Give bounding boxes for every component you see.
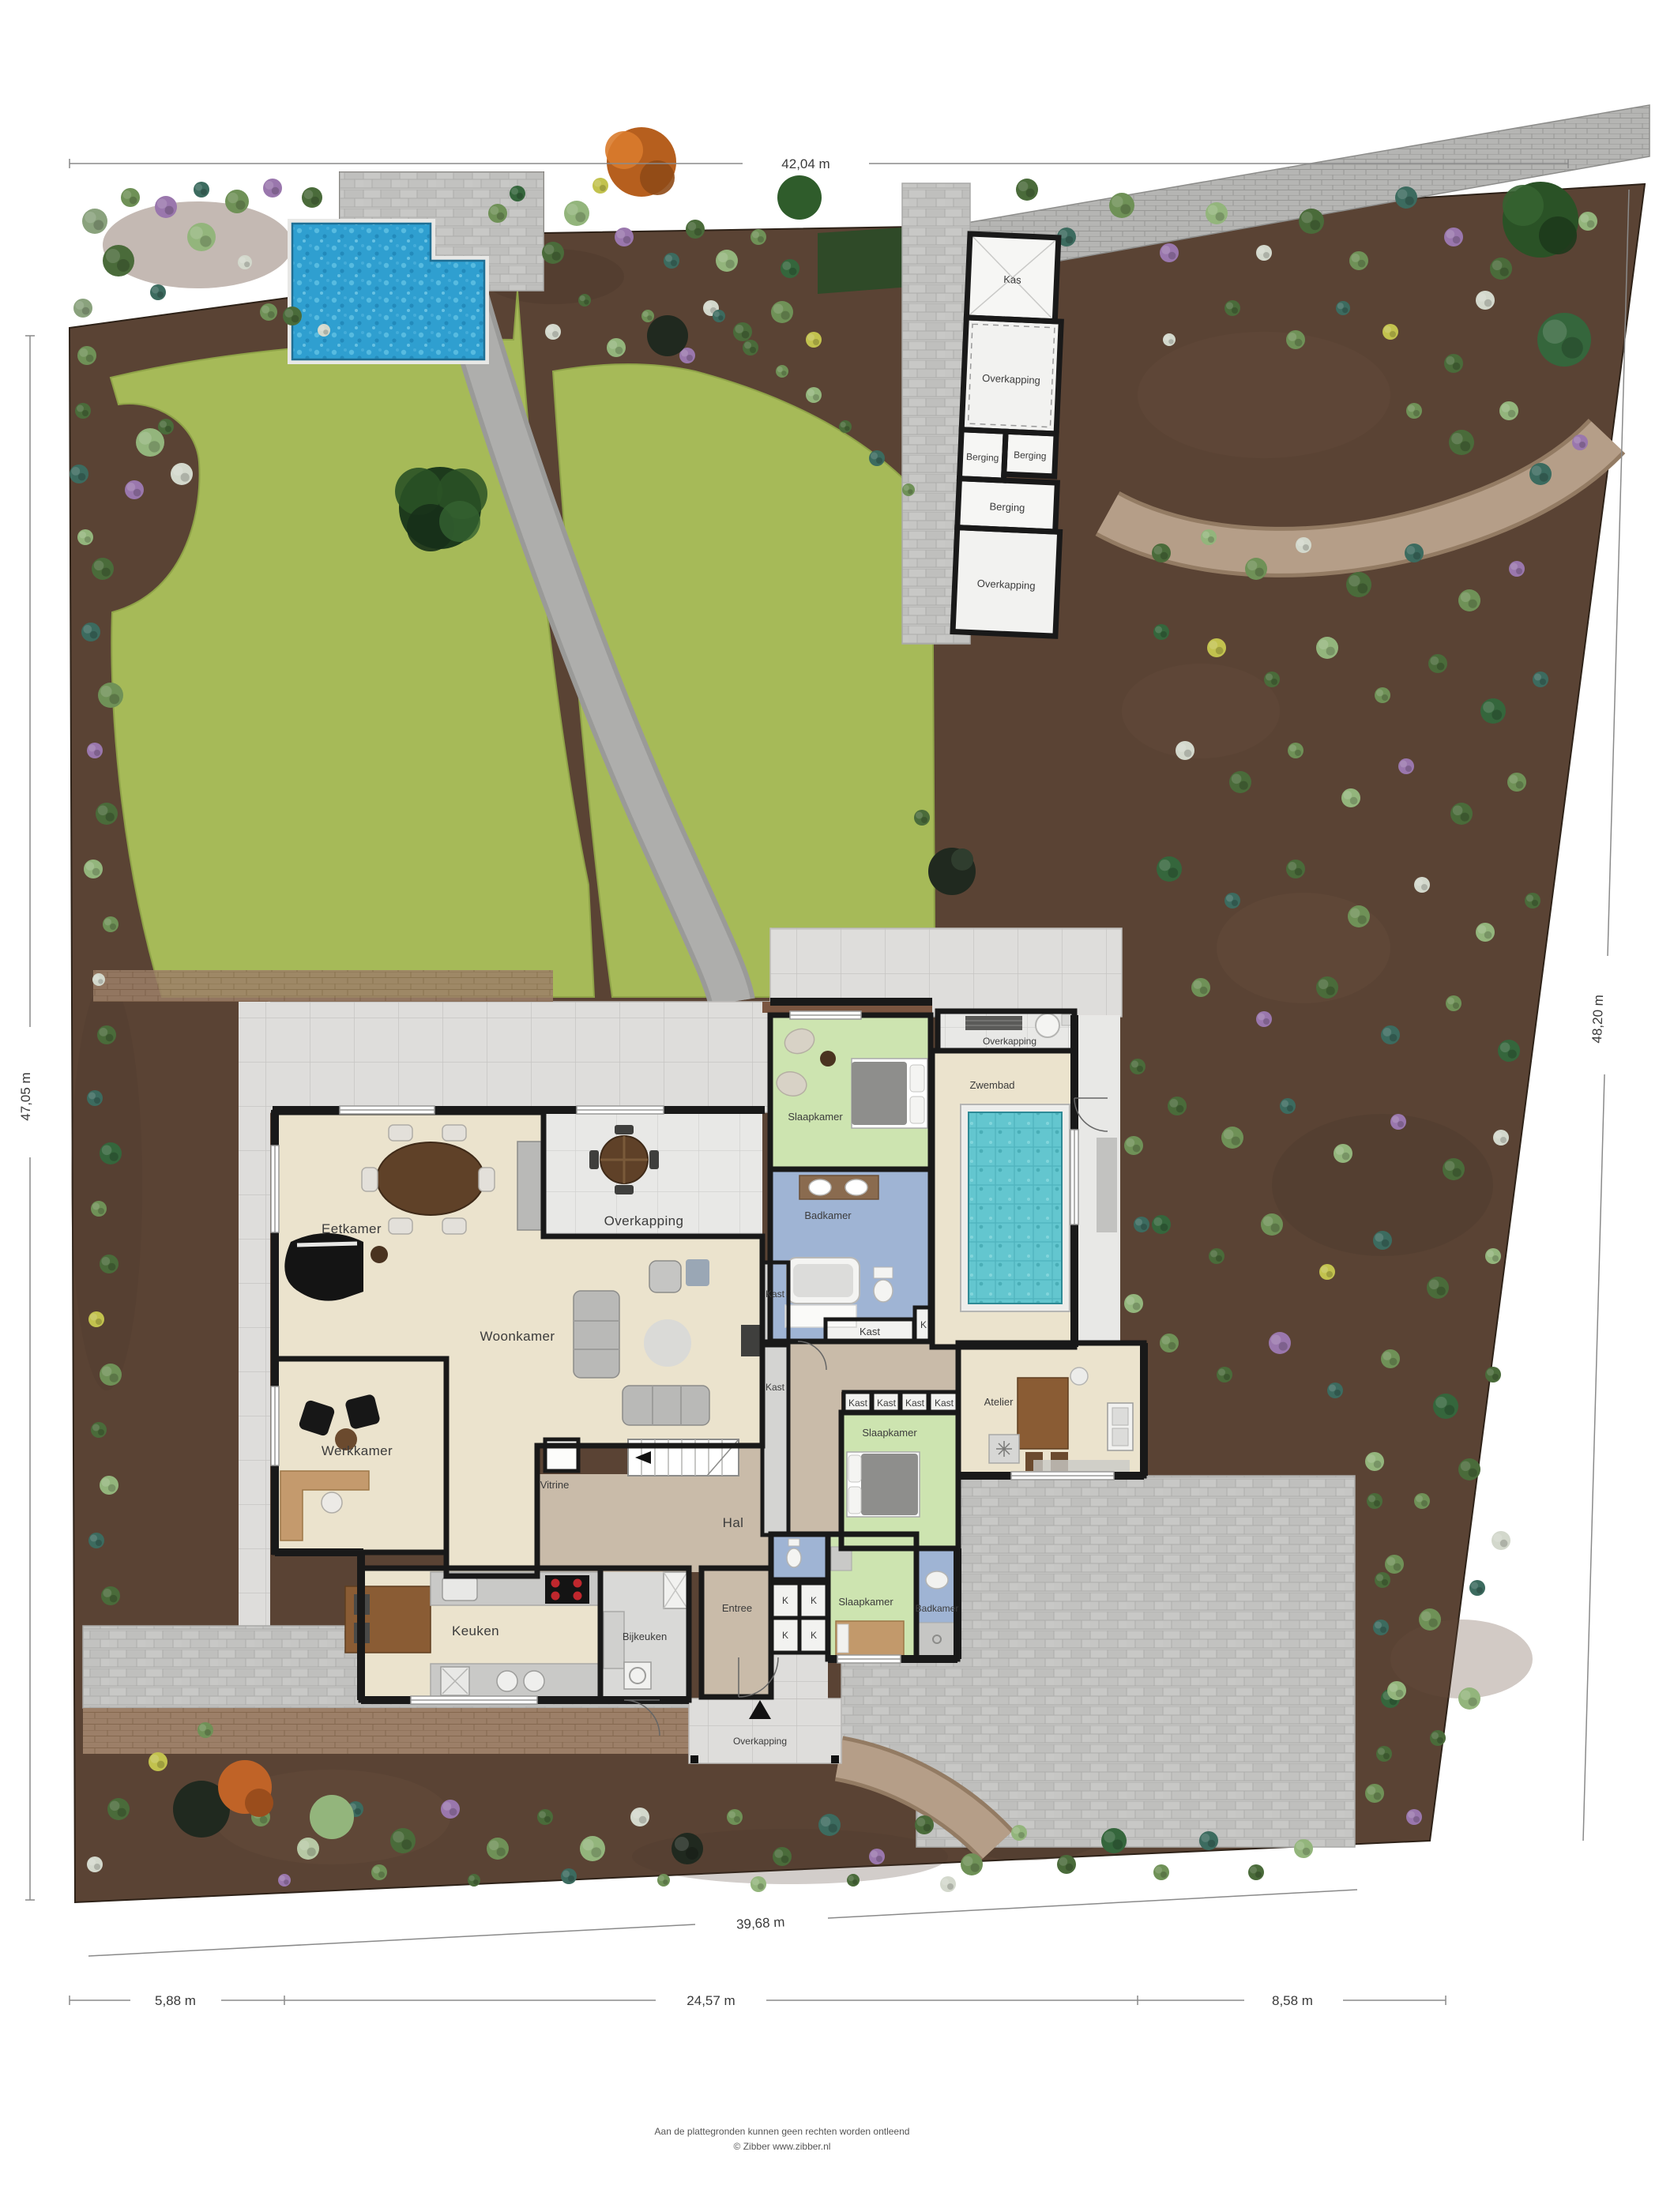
plant	[1224, 300, 1240, 316]
plant	[97, 1025, 116, 1044]
plant	[1498, 1040, 1520, 1062]
plant	[1168, 1097, 1187, 1115]
plant	[1256, 245, 1272, 261]
plant	[1578, 212, 1597, 231]
label-berging-3: Berging	[989, 500, 1025, 513]
plant	[158, 419, 174, 434]
plant	[260, 303, 277, 321]
plant	[592, 178, 608, 194]
plant	[194, 182, 209, 197]
plant	[771, 301, 793, 323]
label-vitrine: Vitrine	[540, 1479, 570, 1491]
plant	[510, 186, 525, 201]
plant	[1446, 995, 1461, 1011]
plant	[100, 1255, 118, 1273]
plant	[961, 1853, 983, 1875]
plant	[98, 683, 123, 708]
plant	[641, 310, 654, 322]
plant	[1458, 589, 1480, 611]
label-kast-row-1: Kast	[848, 1398, 868, 1409]
label-kast-col2: Kast	[766, 1382, 785, 1393]
plant	[1490, 258, 1512, 280]
plant	[1201, 529, 1217, 545]
plant	[1248, 1864, 1264, 1880]
label-zwembad: Zwembad	[969, 1079, 1014, 1091]
plant	[1256, 1011, 1272, 1027]
label-kast-badkamer: Kast	[860, 1326, 880, 1337]
plant	[91, 1201, 107, 1217]
plant	[1430, 1730, 1446, 1746]
plant	[1152, 1215, 1171, 1234]
plant	[1221, 1127, 1243, 1149]
plant	[1341, 788, 1360, 807]
plant	[103, 245, 134, 276]
plant	[1449, 430, 1474, 455]
plant	[371, 1864, 387, 1880]
plant	[869, 450, 885, 466]
plant	[1245, 558, 1267, 580]
plant	[1385, 1555, 1404, 1574]
plant	[1160, 1334, 1179, 1352]
plant	[1406, 403, 1422, 419]
room-corridor-2	[788, 1392, 841, 1536]
plant	[1499, 401, 1518, 420]
plant	[87, 1090, 103, 1106]
label-badkamer-bottom: Badkamer	[916, 1603, 959, 1614]
plant	[657, 1874, 670, 1887]
plant	[1375, 1572, 1390, 1588]
label-overkapping-pool: Overkapping	[983, 1036, 1036, 1047]
label-woonkamer: Woonkamer	[480, 1329, 555, 1344]
plant	[487, 1838, 509, 1860]
plant	[82, 209, 107, 234]
plant	[1390, 1114, 1406, 1130]
plant	[75, 403, 91, 419]
plant	[1458, 1458, 1480, 1480]
plant	[733, 322, 752, 341]
plant	[100, 1476, 118, 1495]
porch-step	[771, 1653, 828, 1698]
plant	[70, 465, 88, 483]
dim-bottom: 39,68 m	[736, 1914, 785, 1932]
plant	[1130, 1059, 1145, 1074]
plant	[1153, 1864, 1169, 1880]
plant	[1124, 1294, 1143, 1313]
plant	[84, 860, 103, 878]
plant	[1509, 561, 1525, 577]
plant	[1387, 1681, 1406, 1700]
plant	[750, 1876, 766, 1892]
plant	[1485, 1248, 1501, 1264]
plant	[806, 332, 822, 348]
plant	[545, 324, 561, 340]
plant	[81, 623, 100, 641]
plant	[1160, 243, 1179, 262]
plant	[839, 420, 852, 433]
plant	[1286, 330, 1305, 349]
plant	[1209, 1248, 1224, 1264]
plant	[1348, 905, 1370, 927]
plant	[1011, 1825, 1027, 1841]
plant	[727, 1809, 743, 1825]
plant	[1365, 1452, 1384, 1471]
plant	[91, 1422, 107, 1438]
label-werkkamer: Werkkamer	[322, 1443, 393, 1458]
plant	[1373, 1619, 1389, 1635]
plant	[92, 558, 114, 580]
plant	[869, 1849, 885, 1864]
label-overkapping-2: Overkapping	[977, 577, 1036, 592]
outbuilding: Kas Overkapping Berging Berging Berging …	[953, 234, 1073, 636]
plant	[615, 228, 634, 246]
plant	[847, 1874, 860, 1887]
label-k-badkamer: K	[920, 1319, 927, 1330]
plant	[88, 1533, 104, 1548]
plant	[1296, 537, 1311, 553]
plant	[1444, 228, 1463, 246]
plant	[1525, 893, 1540, 908]
plant	[278, 1874, 291, 1887]
tree-orange-top	[605, 127, 676, 197]
plant	[283, 307, 302, 325]
plant	[1507, 773, 1526, 792]
plant	[1217, 1367, 1232, 1382]
label-k-grid-2: K	[811, 1595, 817, 1606]
plant	[1349, 251, 1368, 270]
terrace-north	[269, 1002, 773, 1112]
tree-small-top	[777, 175, 822, 220]
label-overkapping-patio: Overkapping	[604, 1213, 684, 1228]
plant	[1294, 1839, 1313, 1858]
plant	[1414, 877, 1430, 893]
footer-credit: © Zibber www.zibber.nl	[734, 2141, 831, 2152]
plant	[915, 1815, 934, 1834]
plant	[1381, 1025, 1400, 1044]
plant	[542, 242, 564, 264]
plant	[1419, 1608, 1441, 1631]
label-berging-1: Berging	[966, 451, 999, 464]
plant	[1264, 671, 1280, 687]
plant	[1346, 572, 1371, 597]
plant	[73, 299, 92, 318]
plant	[1101, 1828, 1127, 1853]
plant	[77, 529, 93, 545]
plant	[1016, 179, 1038, 201]
plant	[750, 229, 766, 245]
label-atelier: Atelier	[984, 1396, 1014, 1408]
plant	[1537, 313, 1591, 367]
plant	[607, 338, 626, 357]
plant	[1367, 1493, 1382, 1509]
plant	[776, 365, 788, 378]
plant	[87, 1856, 103, 1872]
plant	[136, 428, 164, 457]
plant	[1299, 209, 1324, 234]
plant	[1381, 1349, 1400, 1368]
plant	[671, 1833, 703, 1864]
dim-seg-mid: 24,57 m	[687, 1993, 735, 2008]
plant	[1376, 1746, 1392, 1762]
plant	[1134, 1217, 1149, 1232]
plant	[1286, 860, 1305, 878]
plant	[940, 1876, 956, 1892]
label-hal: Hal	[723, 1515, 744, 1530]
plant	[171, 463, 193, 485]
plant	[125, 480, 144, 499]
label-slaapkamer-top: Slaapkamer	[788, 1111, 843, 1123]
tree-green-topright	[1503, 182, 1578, 258]
soil-patch	[1390, 1619, 1533, 1698]
plant	[101, 1586, 120, 1605]
label-berging-2: Berging	[1014, 450, 1047, 462]
plant	[155, 196, 177, 218]
plant	[773, 1847, 792, 1866]
plant	[1206, 202, 1228, 224]
plant	[1176, 741, 1194, 760]
plant	[1109, 193, 1134, 218]
plant	[1373, 1231, 1392, 1250]
plant	[1395, 186, 1417, 209]
plant	[87, 743, 103, 758]
plant	[713, 310, 725, 322]
label-overkapping-porch: Overkapping	[733, 1736, 787, 1747]
label-entree: Entree	[722, 1602, 752, 1614]
plant	[1375, 687, 1390, 703]
soil-patch	[1138, 332, 1390, 458]
dim-left: 47,05 m	[18, 1072, 33, 1120]
plant	[302, 187, 322, 208]
terrace-west-strip	[239, 1002, 270, 1630]
plant	[686, 220, 705, 239]
plant	[902, 483, 915, 496]
plant	[1157, 856, 1182, 882]
plant	[743, 340, 758, 355]
plant	[630, 1808, 649, 1826]
plant	[100, 1364, 122, 1386]
plant	[187, 223, 216, 251]
room-entree	[702, 1568, 771, 1697]
plant	[1199, 1831, 1218, 1850]
plant	[103, 916, 118, 932]
label-slaapkamer-bottom: Slaapkamer	[838, 1596, 893, 1608]
plant	[1469, 1580, 1485, 1596]
plant	[1406, 1809, 1422, 1825]
plant	[564, 201, 589, 226]
label-k-grid-3: K	[782, 1630, 788, 1641]
site-plan-page: Kas Overkapping Berging Berging Berging …	[0, 0, 1659, 2212]
plant	[1288, 743, 1303, 758]
plant	[390, 1828, 416, 1853]
closet-column-2	[762, 1345, 788, 1535]
plant	[1319, 1264, 1335, 1280]
plant	[1152, 544, 1171, 562]
plant	[1572, 434, 1588, 450]
label-badkamer-top: Badkamer	[804, 1209, 852, 1221]
plant	[107, 1798, 130, 1820]
plant	[1444, 354, 1463, 373]
label-bijkeuken: Bijkeuken	[623, 1631, 667, 1642]
plant	[818, 1814, 841, 1836]
plant	[92, 973, 105, 986]
plant	[1269, 1332, 1291, 1354]
label-k-grid-4: K	[811, 1630, 817, 1641]
plant	[914, 810, 930, 826]
plant	[1492, 1531, 1510, 1550]
plant	[716, 250, 738, 272]
plant	[1382, 324, 1398, 340]
label-eetkamer: Eetkamer	[322, 1221, 382, 1236]
plant	[1334, 1144, 1352, 1163]
plant	[1480, 698, 1506, 724]
label-kast-row-2: Kast	[877, 1398, 897, 1409]
plant	[1153, 624, 1169, 640]
plant	[1224, 893, 1240, 908]
plant	[468, 1874, 480, 1887]
plant	[1280, 1098, 1296, 1114]
plant	[1327, 1382, 1343, 1398]
plant	[238, 255, 252, 269]
plant	[318, 324, 330, 337]
label-keuken: Keuken	[452, 1623, 499, 1638]
soil-patch	[1122, 664, 1280, 758]
plant	[96, 803, 118, 825]
plant	[1533, 671, 1548, 687]
plant	[121, 188, 140, 207]
plant	[150, 284, 166, 300]
dim-seg-left: 5,88 m	[155, 1993, 196, 2008]
footer: Aan de plattegronden kunnen geen rechten…	[655, 2126, 910, 2152]
plant	[1443, 1158, 1465, 1180]
plant	[1124, 1136, 1143, 1155]
plant	[88, 1311, 104, 1327]
plant	[1207, 638, 1226, 657]
plant	[1427, 1277, 1449, 1299]
plant	[1493, 1130, 1509, 1145]
label-overkapping-1: Overkapping	[982, 372, 1040, 386]
label-kas: Kas	[1003, 273, 1022, 286]
label-slaapkamer-mid: Slaapkamer	[862, 1427, 917, 1439]
label-kast-row-3: Kast	[905, 1398, 925, 1409]
plant	[580, 1836, 605, 1861]
plant	[806, 387, 822, 403]
plant	[1476, 923, 1495, 942]
plant	[1476, 291, 1495, 310]
plant	[1485, 1367, 1501, 1382]
plant	[1316, 976, 1338, 999]
room-corridor	[788, 1343, 958, 1392]
footer-disclaimer: Aan de plattegronden kunnen geen rechten…	[655, 2126, 910, 2137]
plant	[297, 1838, 319, 1860]
porch-entree	[689, 1698, 841, 1763]
room-hal-main	[537, 1474, 790, 1572]
brick-path-lawn	[93, 970, 553, 1002]
plant	[1414, 1493, 1430, 1509]
plant	[100, 1142, 122, 1164]
dim-seg-right: 8,58 m	[1272, 1993, 1313, 2008]
plant	[537, 1809, 553, 1825]
plant	[1261, 1213, 1283, 1236]
plant	[1529, 463, 1552, 485]
plant	[1336, 301, 1350, 315]
plant	[1057, 1855, 1076, 1874]
plant	[263, 179, 282, 197]
plant	[1229, 771, 1251, 793]
label-k-grid-1: K	[782, 1595, 788, 1606]
plant	[1316, 637, 1338, 659]
label-kast-row-4: Kast	[935, 1398, 954, 1409]
plant	[488, 204, 507, 223]
plant	[225, 190, 249, 213]
plant	[781, 259, 799, 278]
lawn-left	[111, 291, 594, 997]
plant	[1191, 978, 1210, 997]
plant	[664, 253, 679, 269]
dim-right: 48,20 m	[1589, 995, 1606, 1044]
plant	[77, 346, 96, 365]
plant	[1398, 758, 1414, 774]
site-plan: Kas Overkapping Berging Berging Berging …	[0, 0, 1659, 2212]
plant	[197, 1722, 213, 1738]
plant	[1428, 654, 1447, 673]
plant	[1450, 803, 1473, 825]
plant	[1365, 1784, 1384, 1803]
label-kast-col1: Kast	[766, 1288, 785, 1300]
dim-top: 42,04 m	[781, 156, 829, 171]
plant	[1163, 333, 1176, 346]
plant	[1405, 544, 1424, 562]
plant	[1458, 1687, 1480, 1710]
plant	[1433, 1394, 1458, 1419]
plant	[149, 1752, 167, 1771]
plant	[441, 1800, 460, 1819]
plant	[578, 294, 591, 307]
plant	[561, 1868, 577, 1884]
